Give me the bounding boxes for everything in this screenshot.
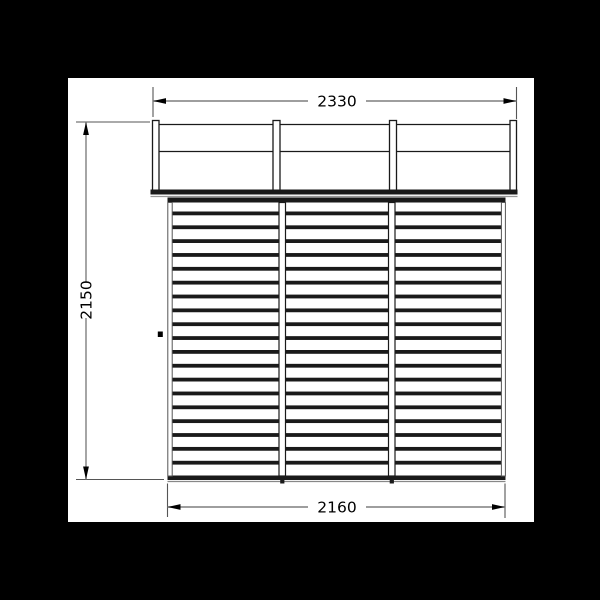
rail-post-mid-left xyxy=(273,121,280,191)
batten-left-foot xyxy=(280,480,284,484)
body-bottom-band xyxy=(168,476,506,481)
cladding-separator xyxy=(172,295,502,299)
cladding-separator xyxy=(172,239,502,243)
left-dimension-label: 2150 xyxy=(78,280,96,319)
cladding-separator xyxy=(172,405,502,409)
corner-trim-left xyxy=(168,203,172,477)
cladding-separator xyxy=(172,322,502,326)
canvas: 2330 2150 2160 xyxy=(0,0,600,600)
cladding-separator xyxy=(172,350,502,354)
cladding-separator xyxy=(172,447,502,451)
bottom-dimension-label: 2160 xyxy=(317,499,356,517)
elevation-drawing: 2330 2150 2160 xyxy=(0,0,600,600)
rail-post-mid-right xyxy=(390,121,397,191)
eave-band xyxy=(151,190,518,195)
cladding-separator xyxy=(172,336,502,340)
cladding-separator xyxy=(172,392,502,396)
cladding-separator xyxy=(172,281,502,285)
cladding-separator xyxy=(172,419,502,423)
clad-body xyxy=(158,198,506,484)
batten-right xyxy=(389,203,396,477)
cladding-separator xyxy=(172,378,502,382)
top-dimension-label: 2330 xyxy=(317,93,356,111)
cladding-separator xyxy=(172,225,502,229)
rail-post-left xyxy=(153,121,160,191)
cladding-separator xyxy=(172,364,502,368)
batten-right-foot xyxy=(390,480,394,484)
cladding-separator xyxy=(172,253,502,257)
batten-left xyxy=(279,203,286,477)
side-latch-detail xyxy=(158,332,163,338)
cladding-separator xyxy=(172,433,502,437)
cladding-separator xyxy=(172,461,502,465)
cladding-separator xyxy=(172,267,502,271)
body-top-band xyxy=(168,198,506,203)
corner-trim-right xyxy=(501,203,505,477)
rail-post-right xyxy=(510,121,517,191)
cladding-separator xyxy=(172,308,502,312)
cladding-separator xyxy=(172,212,502,216)
